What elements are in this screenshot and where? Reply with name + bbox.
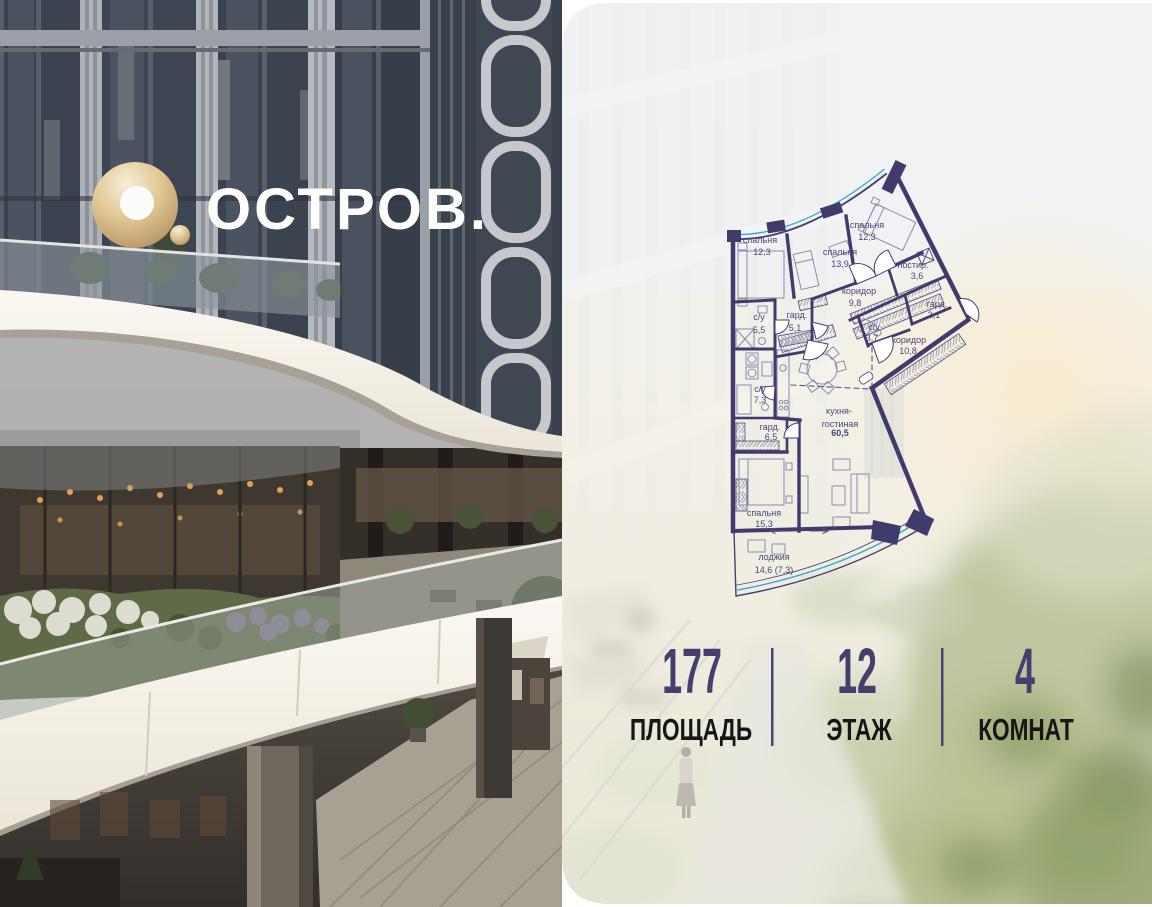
svg-text:5,1: 5,1: [789, 323, 802, 333]
svg-text:3,1: 3,1: [928, 310, 941, 320]
svg-text:10,8: 10,8: [899, 346, 917, 356]
svg-text:12,3: 12,3: [858, 232, 876, 242]
svg-text:с/у: с/у: [753, 312, 765, 322]
svg-text:6,5: 6,5: [765, 432, 778, 442]
svg-text:5,5: 5,5: [753, 325, 766, 335]
svg-text:13,9: 13,9: [831, 259, 849, 269]
svg-text:9,8: 9,8: [849, 298, 862, 308]
svg-text:спальня: спальня: [823, 247, 857, 257]
svg-text:4: 4: [1015, 635, 1035, 707]
svg-text:спальня: спальня: [850, 220, 884, 230]
svg-text:12,3: 12,3: [753, 247, 771, 257]
svg-text:с/у: с/у: [754, 384, 766, 394]
svg-text:кухня-: кухня-: [826, 406, 852, 416]
svg-text:постир.: постир.: [897, 260, 928, 270]
svg-text:3,6: 3,6: [911, 271, 924, 281]
svg-text:гард.: гард.: [787, 310, 808, 320]
svg-text:177: 177: [662, 635, 722, 707]
svg-text:60,5: 60,5: [831, 428, 849, 438]
svg-text:7,3: 7,3: [754, 395, 767, 405]
svg-text:15,3: 15,3: [755, 519, 773, 529]
svg-text:12: 12: [837, 635, 877, 707]
svg-text:спальня: спальня: [743, 235, 777, 245]
svg-text:коридор: коридор: [892, 335, 926, 345]
svg-text:коридор: коридор: [842, 286, 876, 296]
svg-text:гард.: гард.: [927, 299, 948, 309]
svg-text:спальня: спальня: [747, 508, 781, 518]
svg-text:14,6 (7,3): 14,6 (7,3): [755, 565, 794, 575]
svg-text:ПЛОЩАДЬ: ПЛОЩАДЬ: [630, 711, 752, 746]
svg-text:с/у: с/у: [868, 322, 880, 332]
svg-text:КОМНАТ: КОМНАТ: [978, 711, 1074, 746]
svg-text:лоджия: лоджия: [758, 552, 789, 562]
svg-text:гард.: гард.: [760, 422, 781, 432]
svg-text:3,7: 3,7: [866, 333, 879, 343]
svg-text:ЭТАЖ: ЭТАЖ: [826, 711, 892, 746]
svg-text:ОСТРОВ.: ОСТРОВ.: [206, 177, 489, 242]
